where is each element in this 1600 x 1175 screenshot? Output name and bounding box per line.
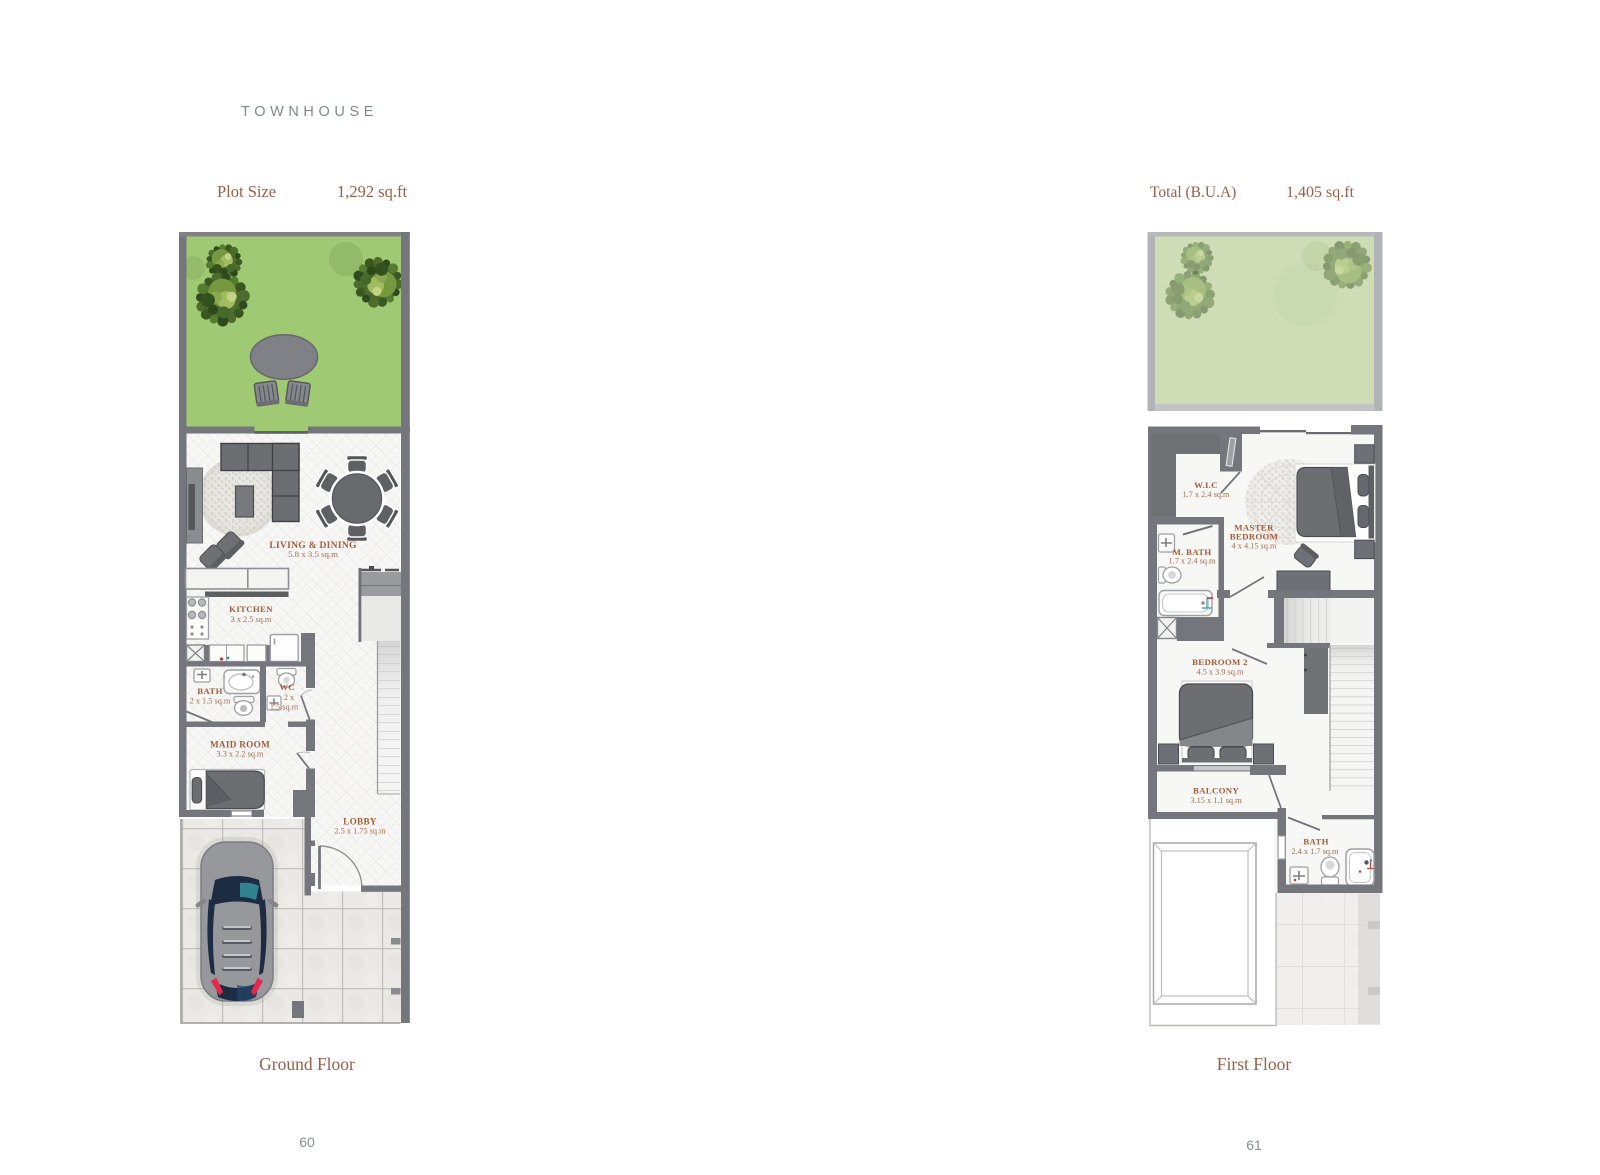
svg-text:3.3 x 2.2 sq.m: 3.3 x 2.2 sq.m [216,750,264,759]
svg-text:60: 60 [299,1134,315,1150]
svg-text:BATH: BATH [197,686,222,696]
svg-text:3 x 2.5 sq.m: 3 x 2.5 sq.m [231,615,272,624]
svg-text:MAID ROOM: MAID ROOM [210,740,270,750]
svg-text:M. BATH: M. BATH [1172,547,1211,557]
svg-text:W.I.C: W.I.C [1194,480,1218,490]
svg-text:2.5 x 1.75 sq.m: 2.5 x 1.75 sq.m [334,827,386,836]
svg-text:KITCHEN: KITCHEN [229,604,273,614]
svg-text:5.8 x 3.5 sq.m: 5.8 x 3.5 sq.m [288,549,338,559]
svg-text:4.5 x 3.9 sq.m: 4.5 x 3.9 sq.m [1196,668,1244,677]
svg-text:1,405 sq.ft: 1,405 sq.ft [1286,184,1355,201]
svg-text:2 x: 2 x [284,693,295,702]
svg-text:2.4 x 1.7 sq.m: 2.4 x 1.7 sq.m [1291,847,1339,856]
svg-text:2 x 1.5 sq.m: 2 x 1.5 sq.m [190,697,231,706]
svg-text:WC: WC [279,682,294,692]
svg-text:BEDROOM 2: BEDROOM 2 [1192,657,1248,667]
svg-text:LOBBY: LOBBY [343,817,377,827]
svg-text:1.7 x 2.4 sq.m: 1.7 x 2.4 sq.m [1182,490,1230,499]
svg-text:BALCONY: BALCONY [1193,786,1239,796]
svg-text:BATH: BATH [1303,837,1328,847]
svg-text:Total (B.U.A): Total (B.U.A) [1150,184,1236,201]
svg-text:TOWNHOUSE: TOWNHOUSE [241,104,378,120]
svg-text:Ground Floor: Ground Floor [259,1054,355,1074]
svg-text:1,292 sq.ft: 1,292 sq.ft [337,182,408,201]
svg-text:61: 61 [1246,1137,1262,1153]
svg-text:1.5 sq.m: 1.5 sq.m [270,703,299,712]
svg-text:Plot Size: Plot Size [217,182,276,201]
svg-text:First Floor: First Floor [1217,1054,1292,1074]
svg-text:BEDROOM: BEDROOM [1230,532,1279,542]
svg-text:4 x 4.15 sq.m: 4 x 4.15 sq.m [1232,542,1277,551]
svg-text:1.7 x 2.4 sq.m: 1.7 x 2.4 sq.m [1168,557,1216,566]
svg-text:3.15 x 1.1 sq.m: 3.15 x 1.1 sq.m [1190,796,1242,805]
